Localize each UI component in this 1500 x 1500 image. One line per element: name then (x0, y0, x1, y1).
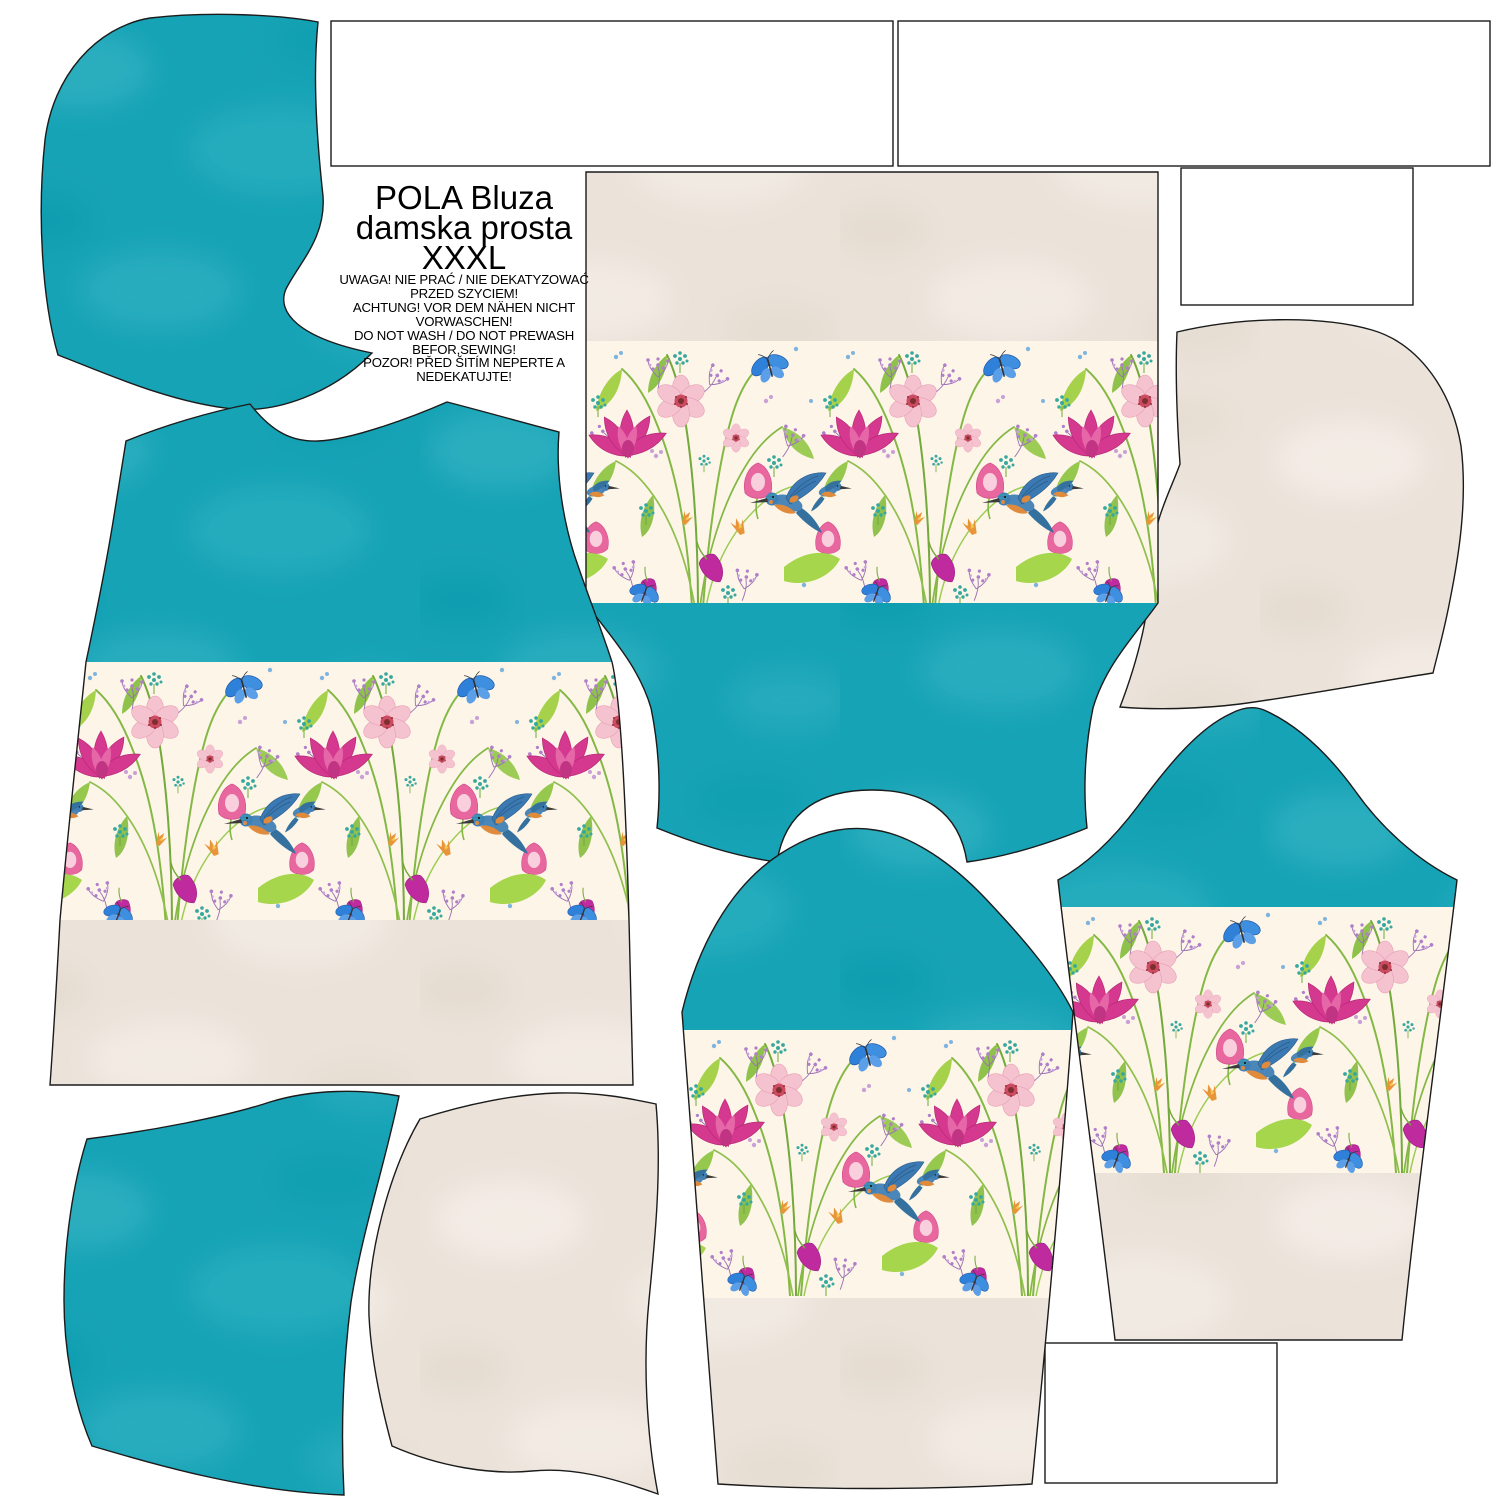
cuff-rectangle-bottom-right (1045, 1343, 1277, 1483)
warning-line-en-1: DO NOT WASH / DO NOT PREWASH (330, 329, 598, 343)
size-label: XXXL (330, 243, 598, 273)
warning-line-pl-1: UWAGA! NIE PRAĆ / NIE DEKATYZOWAĆ (330, 273, 598, 287)
sleeve-piece-center (680, 824, 1076, 1492)
hem-band-strip-left (331, 21, 893, 166)
front-bodice-panel (584, 170, 1160, 875)
warning-line-en-2: BEFOR,SEWING! (330, 343, 598, 357)
warning-line-de-2: VORWASCHEN! (330, 315, 598, 329)
fabric-pattern-sheet: POLA Bluza damska prosta XXXL UWAGA! NIE… (0, 0, 1500, 1500)
warning-line-pl-2: PRZED SZYCIEM! (330, 287, 598, 301)
hood-piece-cream-bottom-center (369, 1093, 658, 1494)
warning-line-de-1: ACHTUNG! VOR DEM NÄHEN NICHT (330, 301, 598, 315)
pattern-pieces-canvas (0, 0, 1500, 1500)
pattern-label-block: POLA Bluza damska prosta XXXL UWAGA! NIE… (330, 183, 598, 384)
warning-line-cz-1: POZOR! PŘED ŠITÍM NEPERTE A (330, 356, 598, 370)
hood-piece-teal-top-left (41, 14, 372, 409)
hem-band-strip-right (898, 21, 1490, 166)
back-bodice-panel (45, 400, 637, 1088)
cuff-rectangle-top-right (1181, 168, 1413, 305)
hood-piece-cream-right (1120, 320, 1463, 709)
hood-piece-teal-bottom-left (64, 1091, 399, 1495)
warning-line-cz-2: NEDEKATUJTE! (330, 370, 598, 384)
sleeve-piece-right (1056, 704, 1460, 1342)
